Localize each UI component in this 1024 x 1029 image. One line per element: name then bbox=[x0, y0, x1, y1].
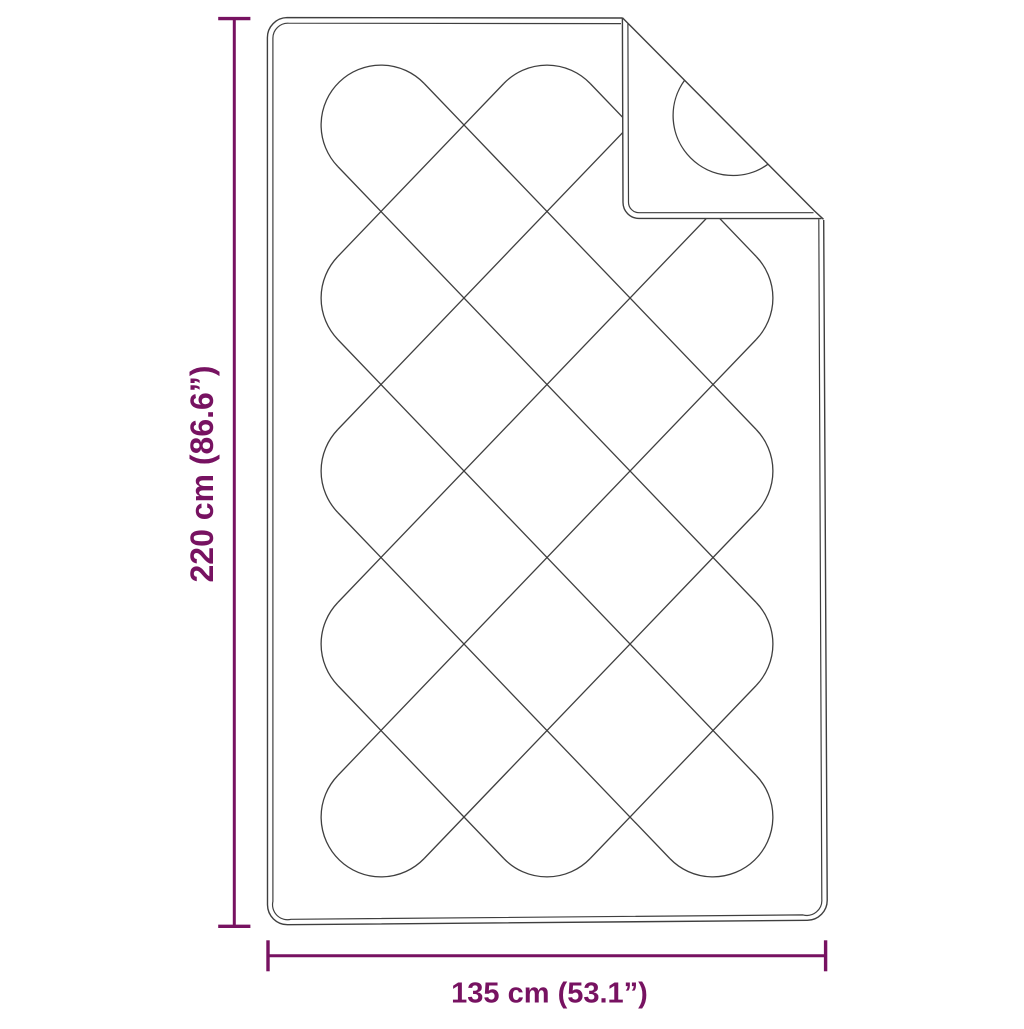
svg-text:135 cm (53.1”): 135 cm (53.1”) bbox=[451, 977, 648, 1009]
svg-text:220 cm (86.6”): 220 cm (86.6”) bbox=[184, 365, 220, 582]
